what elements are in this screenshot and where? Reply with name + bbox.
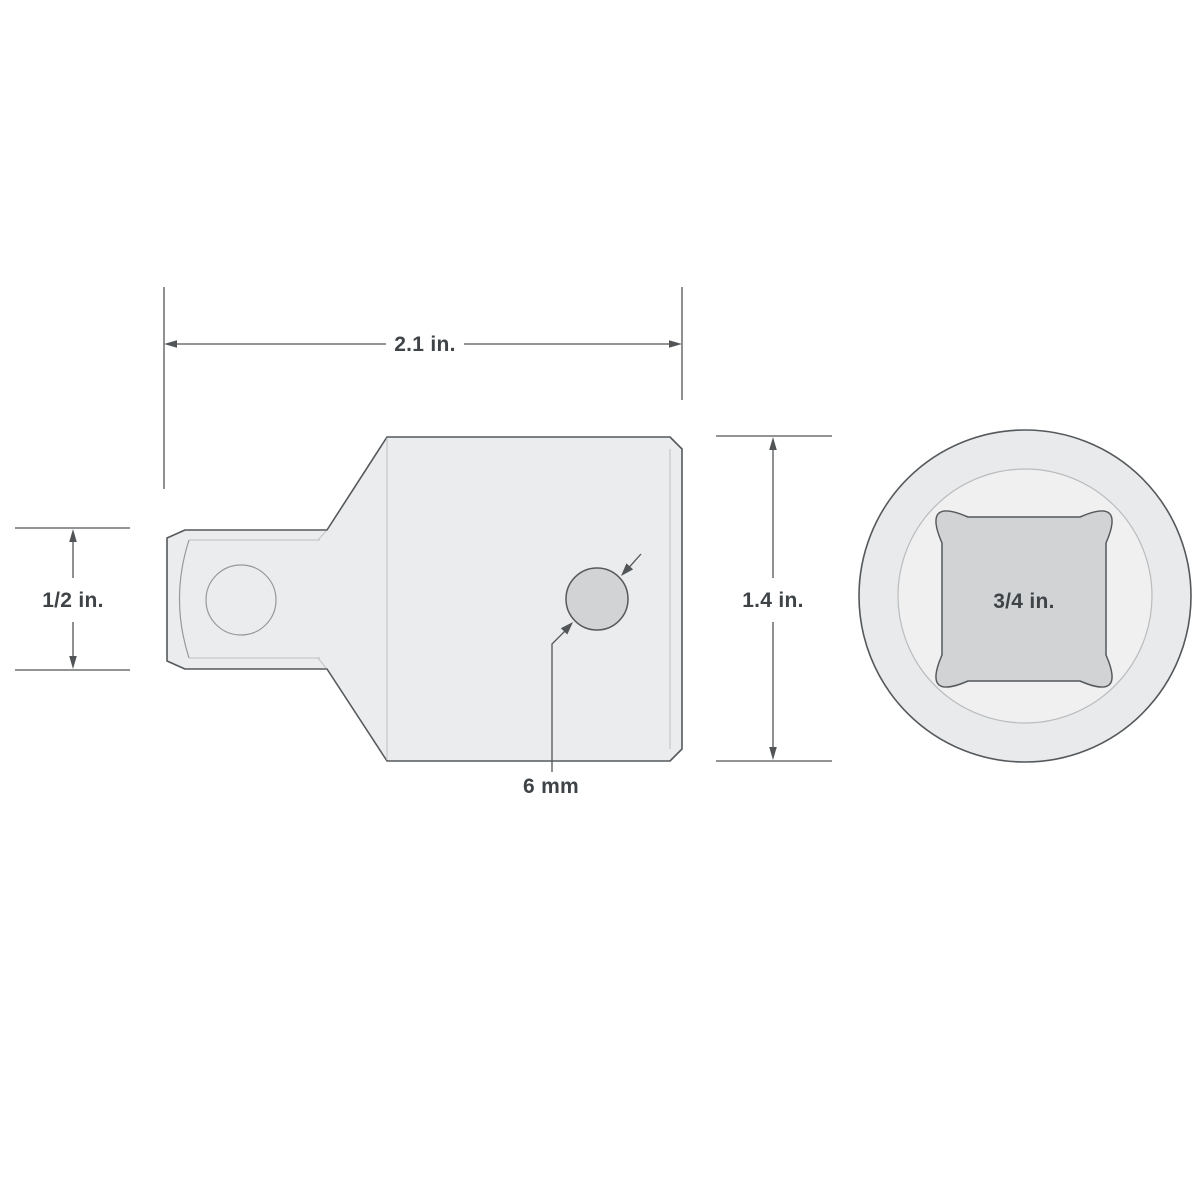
body-diameter-label: 1.4 in. [742, 589, 804, 612]
overall-length-label: 2.1 in. [394, 333, 456, 356]
arrowhead-down [69, 656, 77, 669]
arrowhead-up [769, 437, 777, 450]
dimension-body-diameter: 1.4 in. [716, 436, 832, 761]
drive-tang-size-label: 1/2 in. [42, 589, 104, 612]
arrowhead-right [669, 340, 682, 348]
detent-hole [566, 568, 628, 630]
side-view [167, 437, 682, 761]
end-view: 3/4 in. [859, 430, 1191, 762]
arrowhead-left [164, 340, 177, 348]
arrowhead-up [69, 529, 77, 542]
square-socket-size-label: 3/4 in. [993, 590, 1055, 613]
technical-drawing: 3/4 in. 2.1 in. 1/2 in. [0, 0, 1200, 1200]
dimension-drive-tang: 1/2 in. [15, 528, 130, 670]
drawing-canvas: 3/4 in. 2.1 in. 1/2 in. [0, 0, 1200, 1200]
detent-hole-label: 6 mm [523, 775, 579, 798]
arrowhead-down [769, 747, 777, 760]
